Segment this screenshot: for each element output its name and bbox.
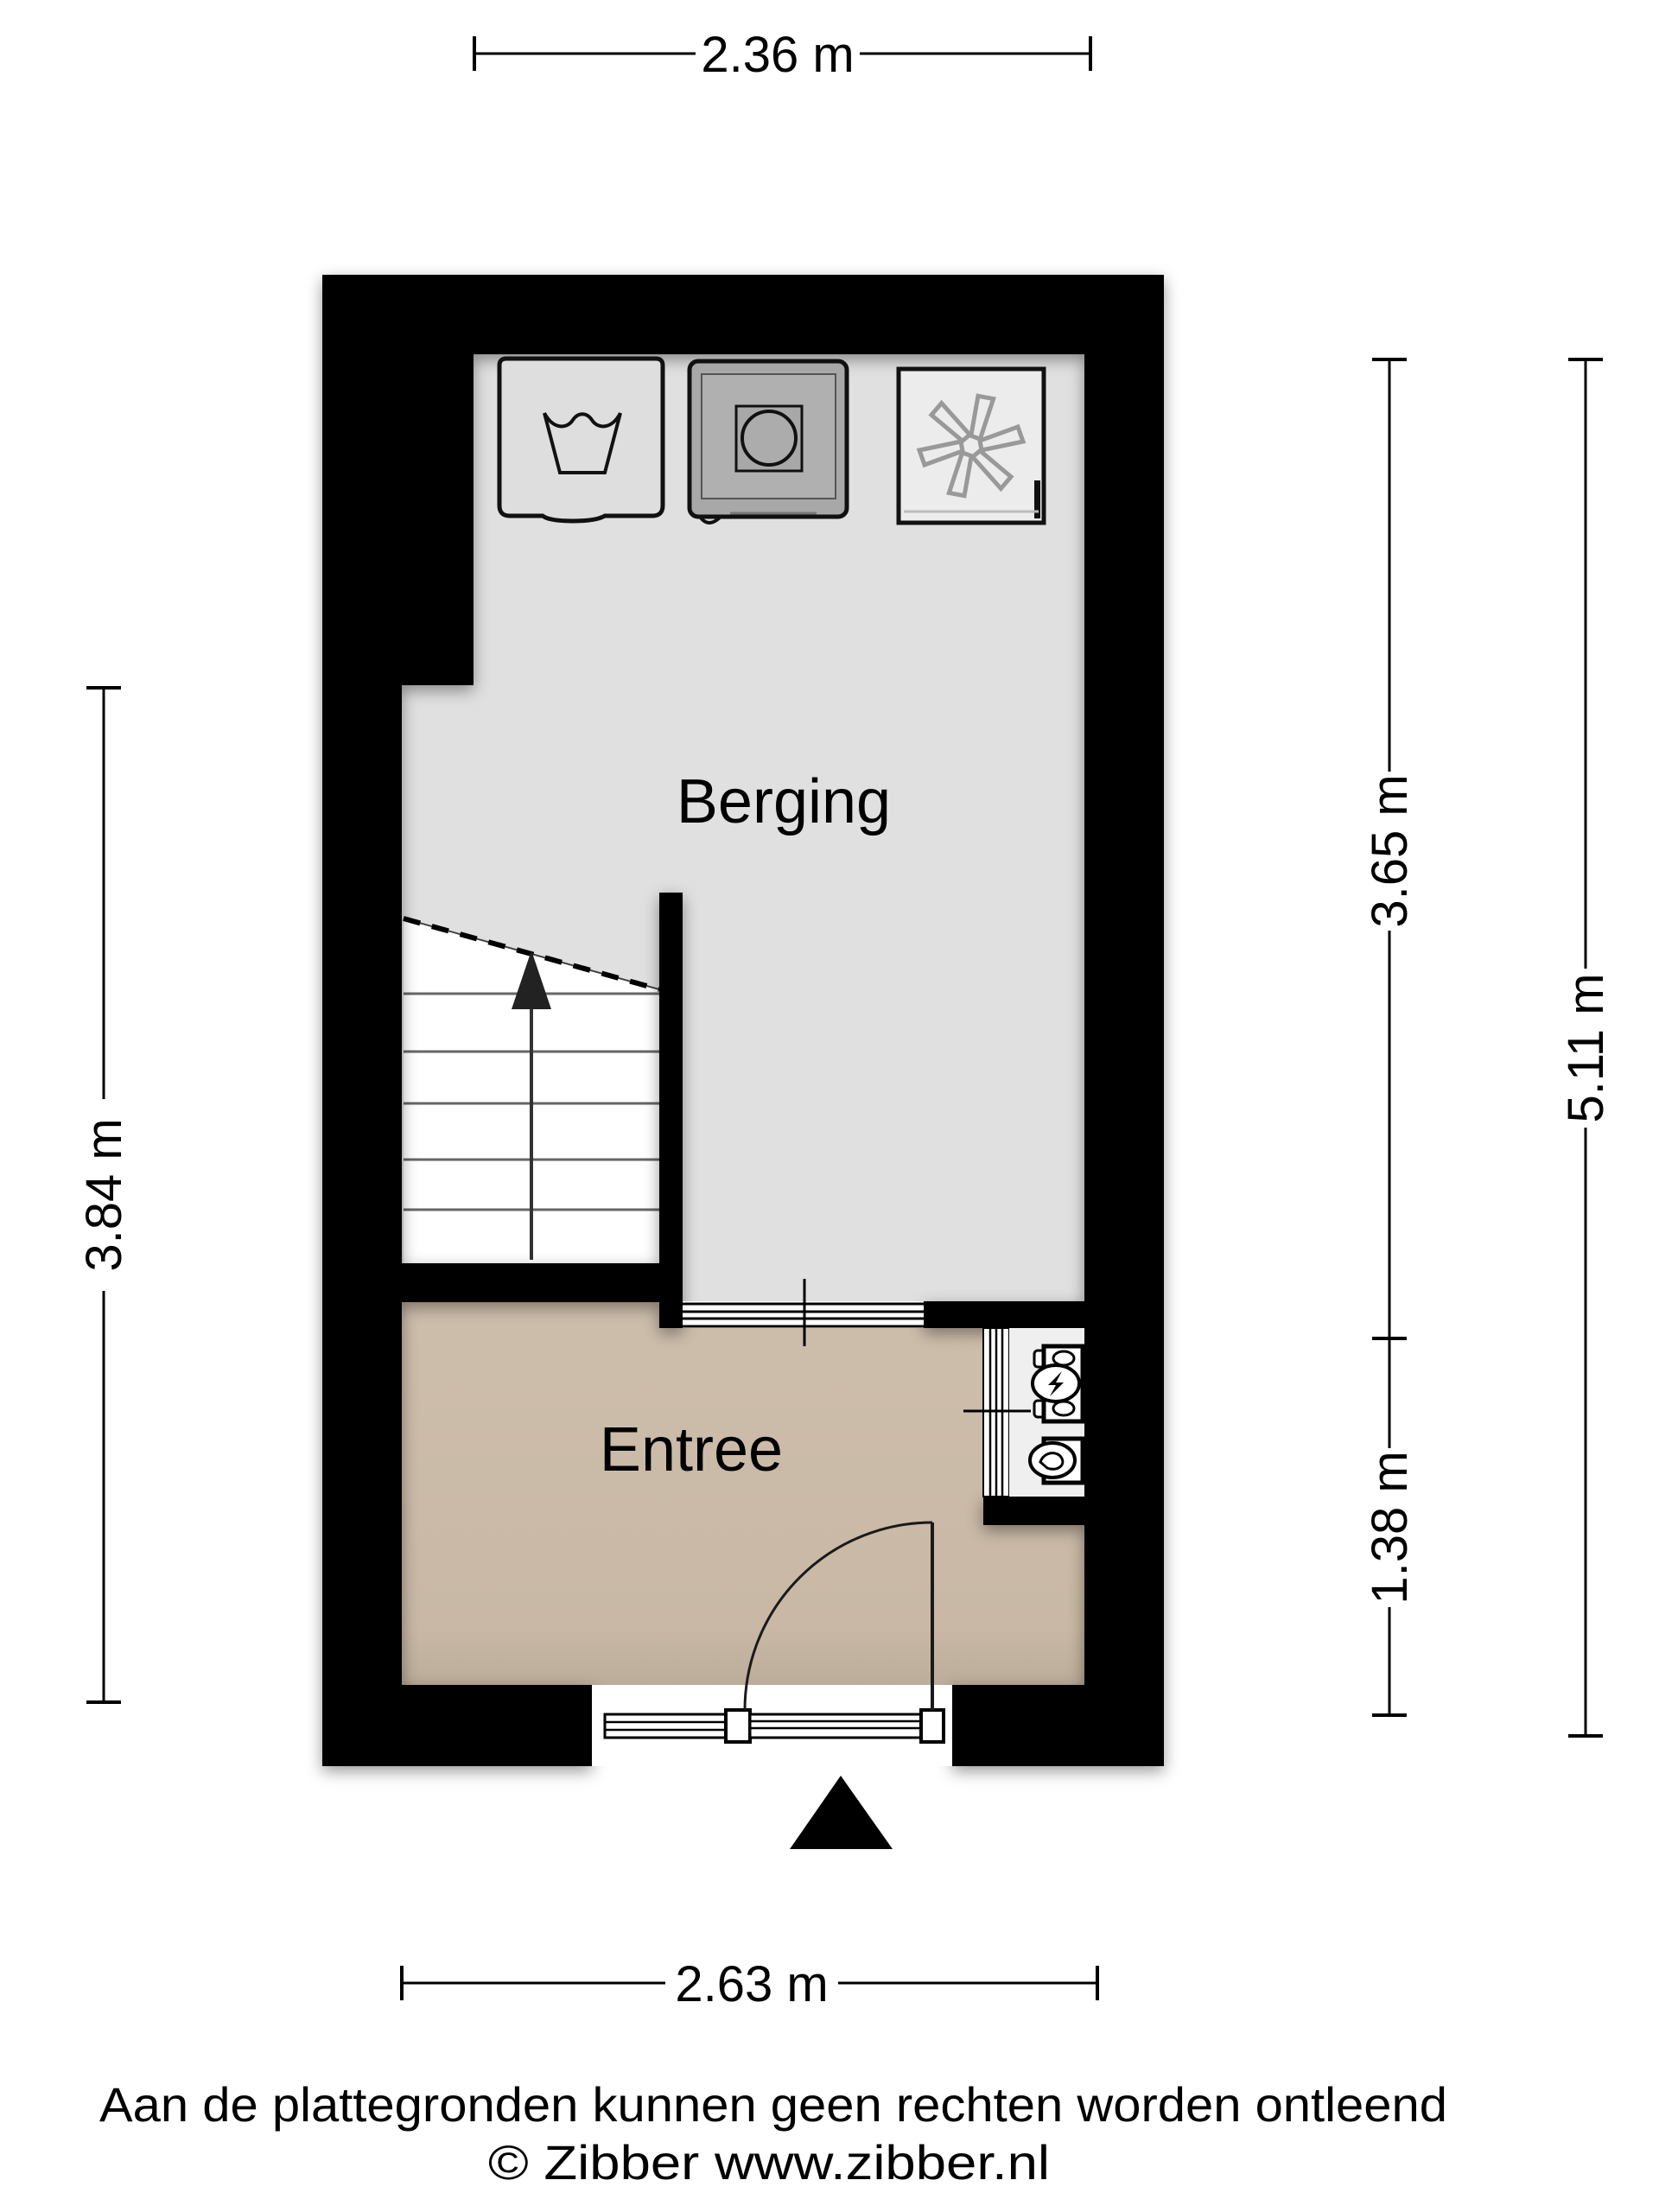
door-hinge-post	[921, 1710, 944, 1742]
dimension-top: 2.36 m	[474, 27, 1090, 83]
wall-stairs-inner	[659, 893, 683, 1328]
footer-credit: © Zibber www.zibber.nl	[488, 2135, 1050, 2190]
wall-meter-bottom	[983, 1497, 1084, 1525]
room-label-berging: Berging	[677, 767, 891, 836]
dimension-right-lower: 1.38 m	[1362, 1338, 1418, 1715]
room-label-entree: Entree	[600, 1415, 783, 1484]
floorplan-canvas: Berging Entree 2.36 m 2.63 m 3.84 m 3.65…	[0, 0, 1659, 2212]
dimension-right-lower-value: 1.38 m	[1362, 1451, 1418, 1604]
door-post	[726, 1710, 750, 1742]
wall-bottom-left	[322, 1685, 592, 1766]
dimension-right-upper-value: 3.65 m	[1362, 774, 1418, 927]
wall-right	[1084, 275, 1164, 1766]
wall-meter-top	[924, 1301, 1164, 1328]
window	[605, 1714, 726, 1738]
floorplan-page: Berging Entree 2.36 m 2.63 m 3.84 m 3.65…	[0, 0, 1659, 2212]
door-threshold	[750, 1714, 921, 1738]
dimension-bottom: 2.63 m	[402, 1956, 1097, 2012]
dimension-right-upper: 3.65 m	[1362, 359, 1418, 1338]
dimension-left-value: 3.84 m	[76, 1118, 132, 1271]
entrance-marker-icon	[790, 1776, 893, 1849]
tumble-dryer-icon	[690, 361, 847, 523]
electricity-meter-icon	[1033, 1346, 1083, 1421]
dimension-left: 3.84 m	[76, 688, 132, 1702]
wall-bottom-right	[952, 1685, 1164, 1766]
room-entree-floor	[402, 1301, 1084, 1685]
dimension-top-value: 2.36 m	[701, 27, 854, 83]
ventilation-unit-icon	[899, 369, 1044, 523]
dimension-right-total-value: 5.11 m	[1558, 973, 1614, 1122]
washing-machine-icon	[499, 359, 663, 521]
wall-left-thick-block	[322, 275, 474, 685]
dimension-right-total: 5.11 m	[1558, 359, 1614, 1736]
dimension-bottom-value: 2.63 m	[675, 1956, 828, 2012]
wall-stairs-bottom	[402, 1263, 659, 1302]
footer-disclaimer: Aan de plattegronden kunnen geen rechten…	[99, 2077, 1447, 2132]
